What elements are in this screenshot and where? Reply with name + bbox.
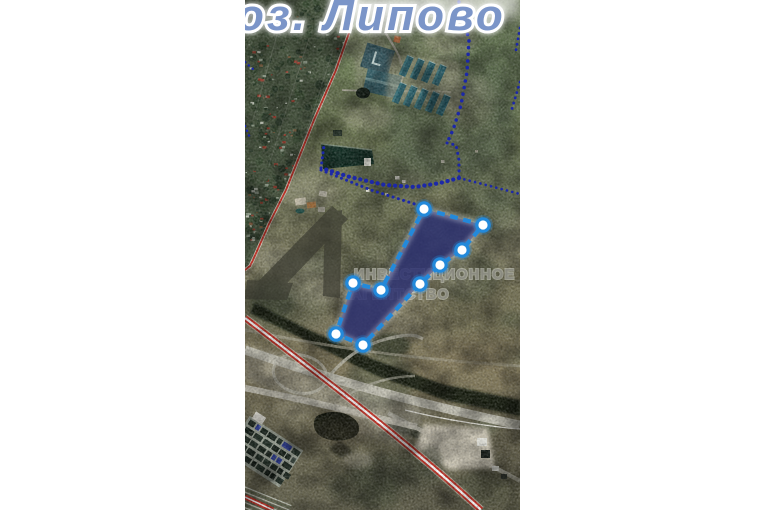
svg-text:оз. Липово: оз. Липово bbox=[245, 0, 506, 40]
